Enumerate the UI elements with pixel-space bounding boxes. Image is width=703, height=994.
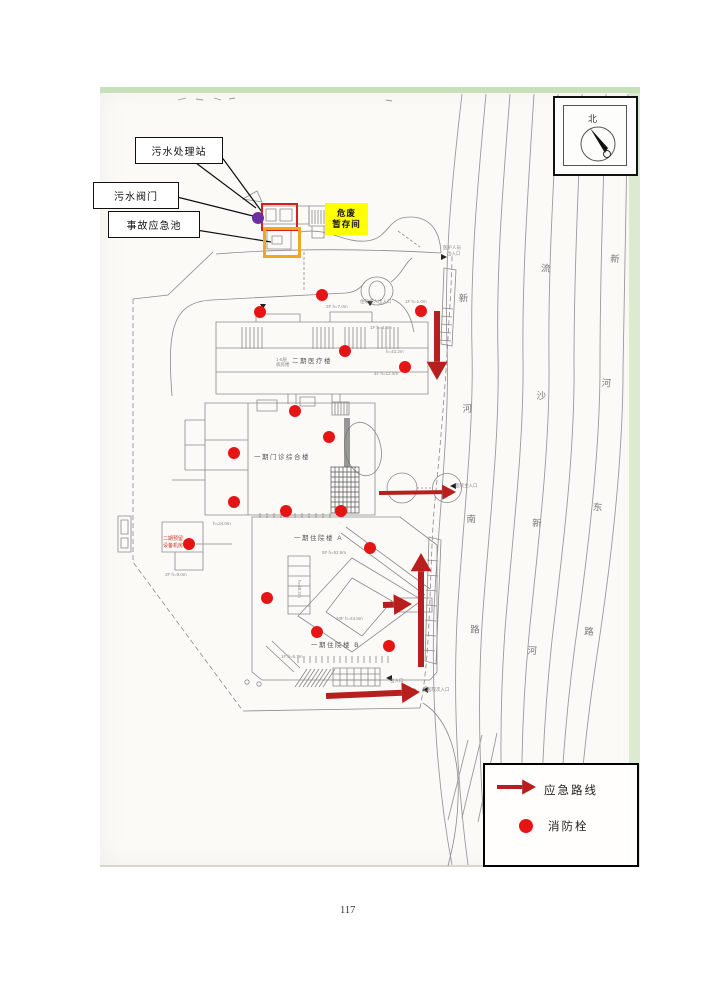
legend-route-label: 应急路线 [544, 782, 598, 798]
legend-hydrant-dot [519, 819, 533, 833]
callout-sewage-valve: 污水阀门 [93, 182, 179, 209]
fire-hydrant-dot [415, 305, 427, 317]
map-tiny-label: 10F h=44.8m [336, 616, 363, 621]
map-tiny-label: 出入口 [447, 251, 461, 257]
fire-hydrant-dot [261, 592, 273, 604]
map-tiny-label: 病房楼 [276, 362, 290, 368]
scanner-edge-right [629, 93, 640, 867]
callout-emergency-pool-label: 事故应急池 [127, 217, 182, 232]
map-tiny-label: h=24.0m [213, 521, 231, 526]
fire-hydrant-dot [228, 447, 240, 459]
fire-hydrant-dot [254, 306, 266, 318]
fire-hydrant-dot [183, 538, 195, 550]
map-tiny-label: 1F h=4.5m [370, 325, 392, 330]
label-medical-building: 二期医疗楼 [292, 355, 332, 365]
callout-sewage-valve-label: 污水阀门 [114, 188, 158, 203]
document-page: 危废 暂存间 污水处理站 污水阀门 事故应急池 北 二期医疗楼 一期门诊综合楼 … [0, 0, 703, 994]
hazardous-waste-storage-label: 危废 暂存间 [325, 203, 368, 235]
callout-sewage-station: 污水处理站 [135, 137, 223, 164]
emergency-pool-highlight-box [263, 227, 301, 258]
legend-box: 应急路线 消防栓 [483, 763, 639, 867]
label-inpatient-a: 一期住院楼 A [294, 532, 343, 542]
fire-hydrant-dot [311, 626, 323, 638]
scanner-edge-top [100, 87, 640, 93]
hazard-label-line2: 暂存间 [332, 219, 361, 230]
map-tiny-label: 2F h=7.0m [326, 304, 348, 309]
fire-hydrant-dot [280, 505, 292, 517]
reserved-line1: 二期预留 [163, 536, 183, 543]
map-tiny-label: 2F h=9.0m [165, 572, 187, 577]
label-outpatient-building: 一期门诊综合楼 [254, 451, 310, 461]
map-tiny-label: 5F h=52.6m [322, 550, 346, 555]
compass-box: 北 [553, 96, 638, 176]
fire-hydrant-dot [335, 505, 347, 517]
map-tiny-label: h=48.2m [297, 580, 302, 598]
fire-hydrant-dot [383, 640, 395, 652]
fire-hydrant-dot [399, 361, 411, 373]
fire-hydrant-dot [289, 405, 301, 417]
page-number: 117 [340, 905, 355, 916]
callout-emergency-pool: 事故应急池 [108, 211, 200, 238]
scanned-site-plan-sheet [100, 87, 640, 867]
map-tiny-label: 医院主入口 [455, 483, 478, 489]
map-tiny-label: 出入口 [390, 678, 404, 684]
fire-hydrant-dot [339, 345, 351, 357]
fire-hydrant-dot [316, 289, 328, 301]
fire-hydrant-dot [323, 431, 335, 443]
map-tiny-label: h=43.2m [386, 349, 404, 354]
map-tiny-label: 1F h=6.7m [281, 654, 303, 659]
sewage-valve-marker [252, 212, 264, 224]
label-reserved-plant-room: 二期预留 设备机房 [163, 536, 183, 549]
reserved-line2: 设备机房 [163, 543, 183, 550]
legend-hydrant-label: 消防栓 [548, 818, 589, 834]
map-tiny-label: 1F h=1.0m [405, 299, 427, 304]
compass-needle-icon [555, 98, 636, 174]
map-tiny-label: 医院次入口 [427, 687, 450, 693]
callout-sewage-station-label: 污水处理站 [152, 143, 207, 158]
hazard-label-line1: 危废 [337, 208, 356, 219]
map-tiny-label: 4F h=12.4m [374, 371, 398, 376]
label-inpatient-b: 一期住院楼 B [311, 639, 360, 649]
map-tiny-label: 住院病人出入口 [360, 299, 392, 305]
fire-hydrant-dot [364, 542, 376, 554]
fire-hydrant-dot [228, 496, 240, 508]
